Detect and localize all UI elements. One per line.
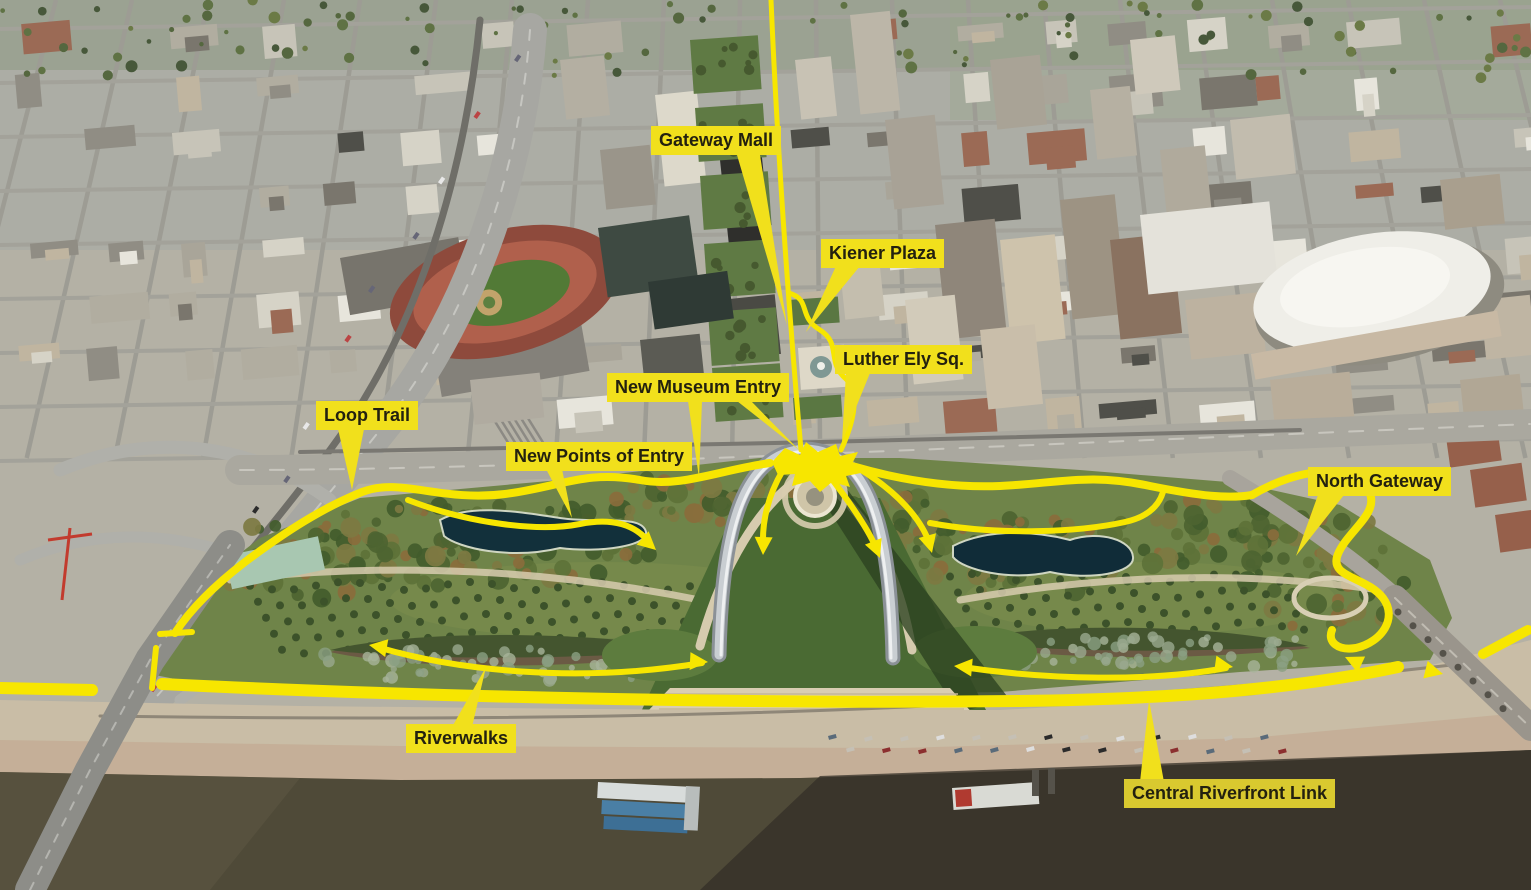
label-kiener-plaza: Kiener Plaza <box>821 239 944 268</box>
label-new-museum-entry: New Museum Entry <box>607 373 789 402</box>
label-luther-ely-sq: Luther Ely Sq. <box>835 345 972 374</box>
label-riverwalks: Riverwalks <box>406 724 516 753</box>
label-north-gateway: North Gateway <box>1308 467 1451 496</box>
aerial-map: Gateway Mall Kiener Plaza Luther Ely Sq.… <box>0 0 1531 890</box>
label-gateway-mall: Gateway Mall <box>651 126 781 155</box>
label-central-riverfront-link: Central Riverfront Link <box>1124 779 1335 808</box>
label-new-points-of-entry: New Points of Entry <box>506 442 692 471</box>
label-loop-trail: Loop Trail <box>316 401 418 430</box>
